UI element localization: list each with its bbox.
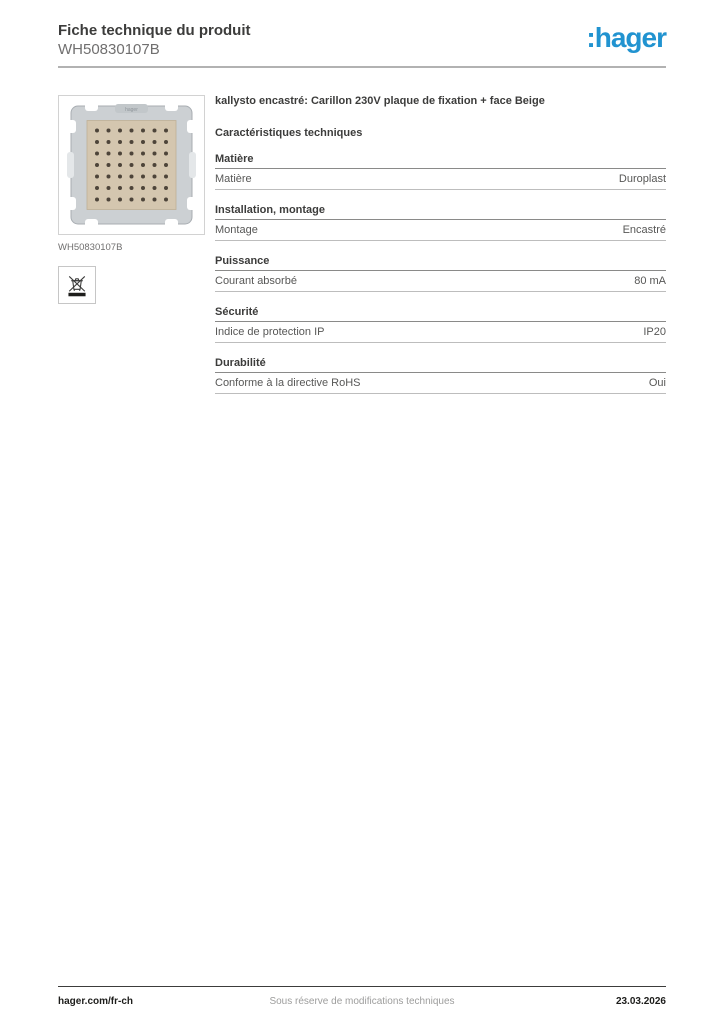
- spec-label: Conforme à la directive RoHS: [215, 377, 361, 389]
- spec-label: Courant absorbé: [215, 275, 297, 287]
- weee-crossed-out-bin-icon: [58, 266, 96, 304]
- section-title: Puissance: [215, 255, 666, 271]
- hager-logo: :hager: [586, 23, 666, 53]
- product-title: kallysto encastré: Carillon 230V plaque …: [215, 95, 666, 108]
- spec-row: Courant absorbé 80 mA: [215, 271, 666, 292]
- spec-label: Montage: [215, 224, 258, 236]
- spec-section-installation: Installation, montage Montage Encastré: [215, 204, 666, 241]
- datasheet-page: Fiche technique du produit WH50830107B :…: [0, 0, 724, 1024]
- header-divider: [58, 66, 666, 68]
- section-title: Durabilité: [215, 357, 666, 373]
- footer-disclaimer: Sous réserve de modifications techniques: [58, 996, 666, 1007]
- spec-section-durabilite: Durabilité Conforme à la directive RoHS …: [215, 357, 666, 394]
- spec-row: Montage Encastré: [215, 220, 666, 241]
- page-footer: hager.com/fr-ch Sous réserve de modifica…: [58, 986, 666, 1007]
- header-titles: Fiche technique du produit WH50830107B: [58, 21, 251, 59]
- spec-section-matiere: Matière Matière Duroplast: [215, 153, 666, 190]
- svg-text:hager: hager: [125, 107, 138, 113]
- product-illustration: hager: [59, 96, 204, 234]
- page-title: Fiche technique du produit: [58, 21, 251, 40]
- section-title: Installation, montage: [215, 204, 666, 220]
- spec-value: Encastré: [623, 224, 666, 236]
- spec-value: Oui: [649, 377, 666, 389]
- page-header: Fiche technique du produit WH50830107B :…: [58, 21, 666, 59]
- product-image-caption: WH50830107B: [58, 242, 205, 253]
- main-content: hager WH50830107B: [58, 95, 666, 394]
- product-reference: WH50830107B: [58, 40, 251, 59]
- spec-label: Matière: [215, 173, 252, 185]
- product-media-column: hager WH50830107B: [58, 95, 205, 394]
- spec-row: Conforme à la directive RoHS Oui: [215, 373, 666, 394]
- spec-section-securite: Sécurité Indice de protection IP IP20: [215, 306, 666, 343]
- spec-value: IP20: [643, 326, 666, 338]
- spec-row: Indice de protection IP IP20: [215, 322, 666, 343]
- spec-section-puissance: Puissance Courant absorbé 80 mA: [215, 255, 666, 292]
- spec-row: Matière Duroplast: [215, 169, 666, 190]
- spec-value: Duroplast: [619, 173, 666, 185]
- spec-label: Indice de protection IP: [215, 326, 324, 338]
- section-title: Matière: [215, 153, 666, 169]
- product-image: hager: [58, 95, 205, 235]
- product-details-column: kallysto encastré: Carillon 230V plaque …: [215, 95, 666, 394]
- spec-value: 80 mA: [634, 275, 666, 287]
- characteristics-heading: Caractéristiques techniques: [215, 127, 666, 139]
- section-title: Sécurité: [215, 306, 666, 322]
